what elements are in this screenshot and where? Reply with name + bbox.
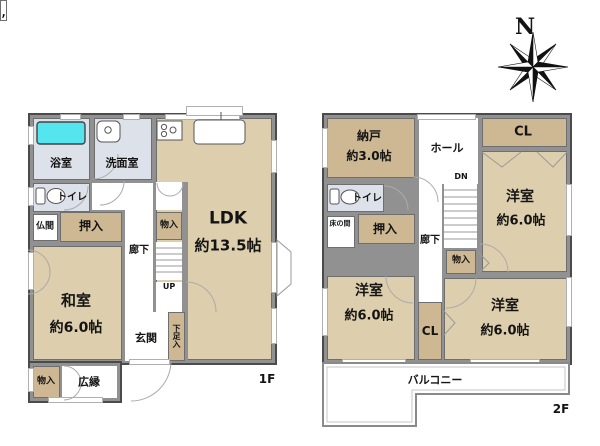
label-toilet-1f: トイレ [57,193,87,203]
label-corridor-1f: 廊下 [129,246,149,256]
label-bedroom-sw-size: 約6.0帖 [344,310,393,323]
label-oshiire-2f: 押入 [373,223,397,235]
label-monoire-hall-1f: 物入 [160,222,178,231]
label-bedroom-ne-size: 約6.0帖 [496,215,545,228]
label-stairs-down: DN [454,173,467,181]
label-genkan: 玄関 [135,333,157,344]
label-monoire-2f: 物入 [452,257,470,266]
label-balcony: バルコニー [408,375,463,386]
label-monoire-corner: 物入 [37,378,55,387]
label-nando: 納戸 [357,130,381,142]
compass-north-label: N [515,16,535,38]
bathtub-icon [37,122,85,144]
label-toilet-2f: トイレ [352,194,382,204]
label-hiroen: 広縁 [78,377,100,388]
label-washroom: 洗面室 [106,158,139,169]
label-bedroom-sw: 洋室 [355,284,383,298]
floor1-label: 1F [259,373,276,385]
label-washitsu-size: 約6.0帖 [50,321,103,335]
compass-rose [498,32,568,102]
stair-treads-2f [444,190,477,239]
label-cl-mid: CL [422,325,438,337]
label-stairs-up: UP [163,283,175,291]
label-corridor-2f: 廊下 [420,236,440,246]
label-nando-size: 約3.0帖 [346,150,391,162]
label-cl-top: CL [514,126,532,139]
label-oshiire-1f: 押入 [79,220,103,232]
stair-treads-1f [156,248,182,272]
balcony-outline [323,363,569,426]
stove-icon [157,121,182,140]
label-hall-2f: ホール [431,143,464,154]
label-bedroom-se-size: 約6.0帖 [480,325,529,338]
label-ldk: LDK [209,211,247,228]
label-tokonoma: 床の間 [330,221,351,228]
bay-window-ldk [277,240,291,296]
floor2-label: 2F [553,403,570,415]
label-butsuma: 仏間 [36,223,54,232]
label-shoe-closet: 下足入 [172,324,180,348]
floorplan-canvas: , [0,0,600,446]
label-ldk-size: 約13.5帖 [194,239,261,254]
label-bedroom-ne: 洋室 [506,190,534,204]
washbasin-icon [97,121,120,142]
label-bedroom-se: 洋室 [491,299,519,313]
kitchen-sink-icon [194,112,245,144]
label-washitsu: 和室 [61,294,91,309]
label-bath: 浴室 [50,158,72,169]
